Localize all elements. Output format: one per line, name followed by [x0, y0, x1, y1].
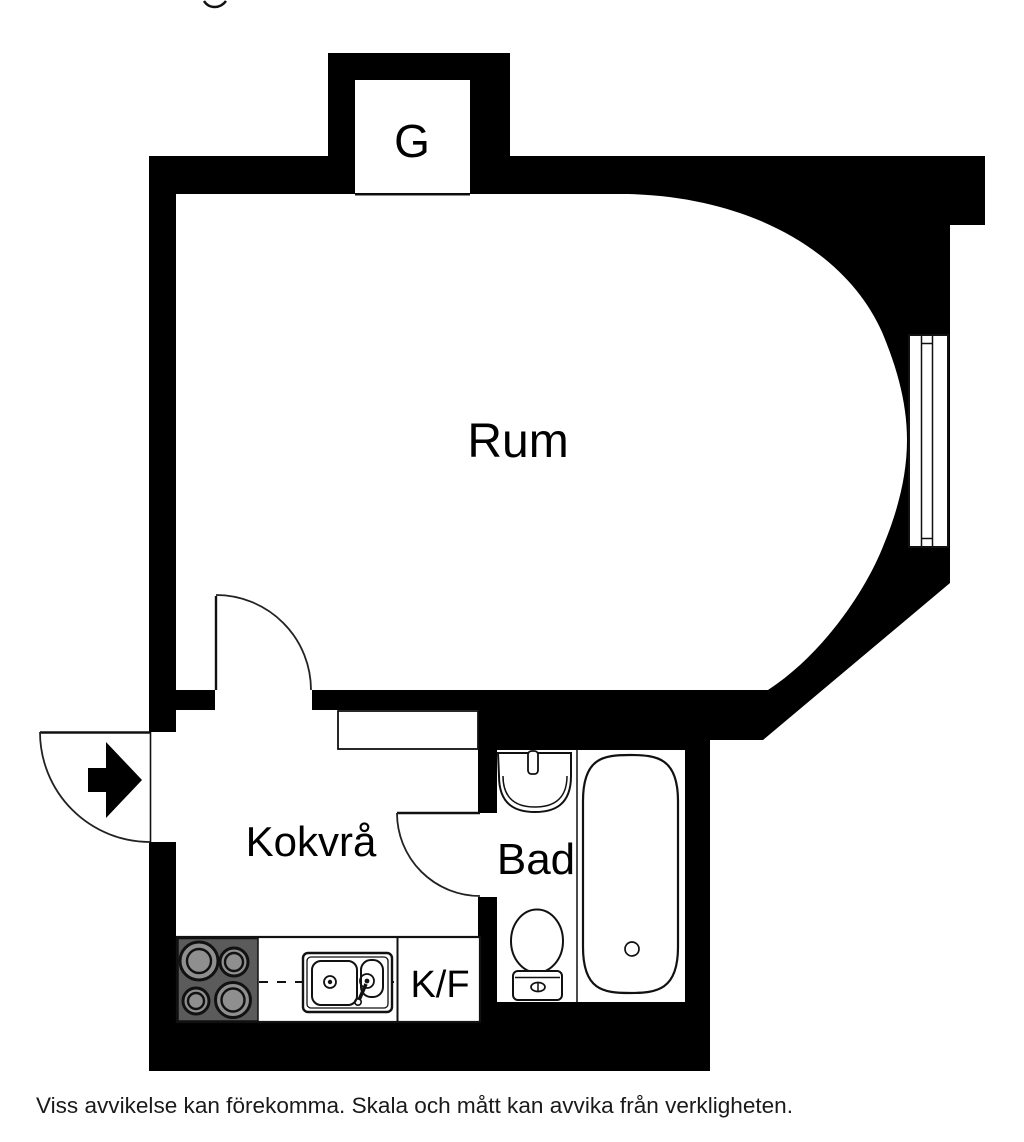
bathtub	[583, 755, 678, 993]
bathtub-drain-icon	[625, 942, 639, 956]
label-kokvra: Kokvrå	[246, 818, 377, 865]
floorplan-page: G Rum Kokvrå Bad K/F Viss avvikelse kan …	[0, 0, 1024, 1142]
sink-tap-icon	[528, 751, 538, 774]
kitchen-upper-counter	[338, 711, 478, 749]
opening-rum-kokvra	[215, 688, 312, 712]
bay-window	[909, 335, 948, 547]
bathroom-sink	[498, 751, 571, 812]
cropped-title-text-fragment	[204, 1, 226, 7]
stove	[178, 939, 258, 1022]
wall-rum-kokvra-right	[312, 690, 478, 710]
label-closet-g: G	[394, 115, 430, 167]
disclaimer-text: Viss avvikelse kan förekomma. Skala och …	[36, 1093, 793, 1118]
floorplan-drawing: G Rum Kokvrå Bad K/F Viss avvikelse kan …	[0, 0, 1024, 1142]
label-kf: K/F	[410, 964, 469, 1006]
kitchen-sink	[303, 953, 392, 1012]
wall-kokvra-bad-upper	[478, 750, 497, 813]
toilet	[511, 910, 563, 1001]
label-rum: Rum	[467, 415, 568, 468]
label-bad: Bad	[497, 835, 575, 884]
wall-rum-bad	[478, 690, 685, 750]
opening-bad-door	[477, 813, 499, 897]
entrance-arrow-icon	[88, 742, 142, 818]
wall-rum-kokvra-left	[149, 690, 215, 710]
